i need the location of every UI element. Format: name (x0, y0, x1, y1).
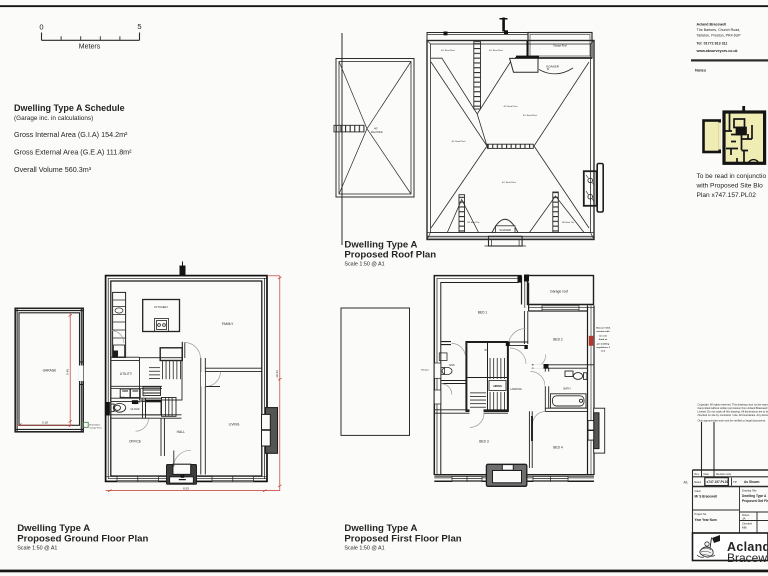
svg-text:x747.157.PL03: x747.157.PL03 (707, 480, 729, 484)
svg-text:To be read in conjunctio: To be read in conjunctio (697, 173, 767, 180)
svg-text:5.49: 5.49 (66, 369, 70, 375)
svg-text:Proposed Ground Floor Plan: Proposed Ground Floor Plan (17, 534, 148, 545)
svg-text:Year Year Num: Year Year Num (695, 518, 717, 522)
svg-text:Tel: 01772 813 311: Tel: 01772 813 311 (697, 42, 728, 46)
svg-text:CLOAK: CLOAK (130, 407, 139, 411)
svg-text:Gross External Area (G.E.A) 1: Gross External Area (G.E.A) 111.8m² (14, 148, 132, 157)
svg-text:Dwelling Type A: Dwelling Type A (344, 523, 417, 534)
svg-text:8.53: 8.53 (183, 486, 189, 490)
svg-text:Copyright. All rights reserved: Copyright. All rights reserved. This dra… (698, 403, 768, 407)
svg-text:SOAKER: SOAKER (499, 228, 511, 232)
svg-text:Only approximate and must be v: Only approximate and must be verified on… (698, 419, 767, 423)
svg-text:40° Roof Pitch: 40° Roof Pitch (503, 105, 518, 108)
svg-text:The Bartons, Church Road,: The Bartons, Church Road, (697, 28, 741, 32)
svg-text:Client: Client (695, 490, 702, 493)
svg-text:TP: TP (733, 480, 737, 484)
svg-text:GARAGE: GARAGE (43, 369, 57, 373)
svg-text:Acland Bracewell: Acland Bracewell (697, 23, 727, 27)
svg-text:R5 Roof Tile: R5 Roof Tile (562, 222, 575, 224)
svg-text:Proposed First Floor Plan: Proposed First Floor Plan (344, 534, 461, 545)
svg-text:FAMILY: FAMILY (222, 322, 234, 326)
svg-text:OFFICE: OFFICE (129, 440, 142, 444)
svg-text:40° Roof Pitch: 40° Roof Pitch (441, 49, 456, 52)
svg-text:Scale 1:50 @ A1: Scale 1:50 @ A1 (344, 262, 384, 268)
svg-text:Meters: Meters (79, 44, 101, 51)
svg-text:Window: Window (421, 370, 429, 372)
svg-text:www.absurveyors.co.uk: www.absurveyors.co.uk (696, 49, 738, 53)
svg-text:Proposed Grd Flr Plan: Proposed Grd Flr Plan (742, 499, 768, 503)
svg-text:JA: JA (742, 517, 746, 521)
svg-text:40° Roof Pitch: 40° Roof Pitch (489, 49, 504, 52)
svg-text:UTILITY: UTILITY (120, 372, 133, 376)
svg-text:Scale 1:50 @ A1: Scale 1:50 @ A1 (17, 546, 57, 552)
svg-text:Drawing Title: Drawing Title (742, 490, 757, 493)
svg-text:Date: Date (704, 473, 710, 476)
svg-text:(Garage inc. in calculations): (Garage inc. in calculations) (14, 115, 93, 122)
svg-text:air vent: air vent (599, 334, 607, 337)
svg-text:40° Roof Pitch: 40° Roof Pitch (523, 114, 538, 117)
svg-text:fitted as: fitted as (599, 338, 608, 341)
svg-text:Rev: Rev (695, 473, 700, 476)
svg-text:HALL: HALL (177, 430, 185, 434)
svg-text:40° Roof Pitch: 40° Roof Pitch (502, 181, 517, 184)
svg-text:vent: vent (601, 350, 606, 353)
svg-text:10.43: 10.43 (275, 370, 279, 378)
svg-text:Garage roof: Garage roof (550, 290, 568, 294)
svg-text:Dwelling Type A: Dwelling Type A (742, 494, 767, 498)
svg-text:Dwelling Type A: Dwelling Type A (17, 523, 90, 534)
svg-text:Plan x747.157.PL02: Plan x747.157.PL02 (697, 192, 757, 199)
svg-text:Obscure Glzd: Obscure Glzd (596, 328, 611, 330)
svg-text:Bracew: Bracew (727, 551, 767, 565)
svg-text:5.18: 5.18 (42, 421, 48, 425)
svg-text:Tarleton, Preston, PR4 6UP: Tarleton, Preston, PR4 6UP (697, 33, 742, 37)
svg-text:LIVING: LIVING (229, 423, 240, 427)
svg-text:Boiler/Valve: Boiler/Valve (89, 424, 101, 427)
svg-text:BED 1: BED 1 (478, 311, 488, 315)
svg-text:with Proposed Site Blo: with Proposed Site Blo (696, 183, 764, 190)
svg-text:Revision note: Revision note (716, 473, 732, 476)
svg-text:BED 3: BED 3 (479, 440, 489, 444)
svg-text:SOAKER: SOAKER (546, 64, 560, 68)
svg-text:BED 2: BED 2 (553, 338, 563, 342)
svg-text:Mr S Bracewell: Mr S Bracewell (695, 495, 718, 499)
svg-text:checked on site by contractor: checked on site by contractor / site. Al… (698, 413, 768, 417)
svg-text:A1: A1 (684, 481, 688, 485)
svg-text:regulations 2: regulations 2 (596, 346, 610, 349)
svg-text:Gross Internal Area (G.I.A) 1: Gross Internal Area (G.I.A) 154.2m² (14, 130, 128, 139)
svg-text:Dwelling Type A Schedule: Dwelling Type A Schedule (14, 103, 125, 113)
svg-text:Scale 1:50 @ A1: Scale 1:50 @ A1 (344, 546, 384, 552)
svg-text:5: 5 (137, 22, 141, 31)
svg-text:0: 0 (39, 23, 43, 32)
svg-text:40° Roof Pitch: 40° Roof Pitch (451, 140, 466, 143)
svg-text:BATH: BATH (564, 387, 571, 391)
svg-text:Roof Pitch: Roof Pitch (371, 130, 384, 134)
svg-text:Garage Roof: Garage Roof (553, 45, 567, 48)
svg-text:transmitted without written pe: transmitted without written permission f… (698, 406, 768, 410)
svg-text:Proposed Roof Plan: Proposed Roof Plan (344, 250, 436, 261)
svg-text:As Shown: As Shown (744, 480, 759, 484)
svg-text:LANDING: LANDING (510, 387, 522, 391)
svg-text:ST: ST (484, 348, 488, 352)
svg-text:AIRING: AIRING (493, 384, 502, 388)
svg-text:Charge Point: Charge Point (89, 426, 102, 429)
svg-text:KITCHEN: KITCHEN (154, 305, 167, 309)
svg-text:Notes: Notes (695, 68, 707, 73)
svg-text:MB: MB (742, 526, 747, 530)
svg-text:R5 Roof Tile: R5 Roof Tile (467, 222, 480, 224)
svg-text:Status: Status (694, 481, 702, 484)
svg-text:per building: per building (597, 343, 610, 345)
svg-text:Overall Volume 560.3m³: Overall Volume 560.3m³ (14, 165, 92, 174)
svg-text:Limited. Do not scale off thi: Limited. Do not scale off this drawing. … (698, 410, 768, 414)
svg-text:window with: window with (596, 330, 610, 333)
svg-text:ENS: ENS (449, 364, 454, 367)
svg-text:BED 4: BED 4 (553, 446, 563, 450)
svg-text:W.C: W.C (120, 396, 125, 399)
svg-text:Project No.: Project No. (695, 513, 708, 516)
